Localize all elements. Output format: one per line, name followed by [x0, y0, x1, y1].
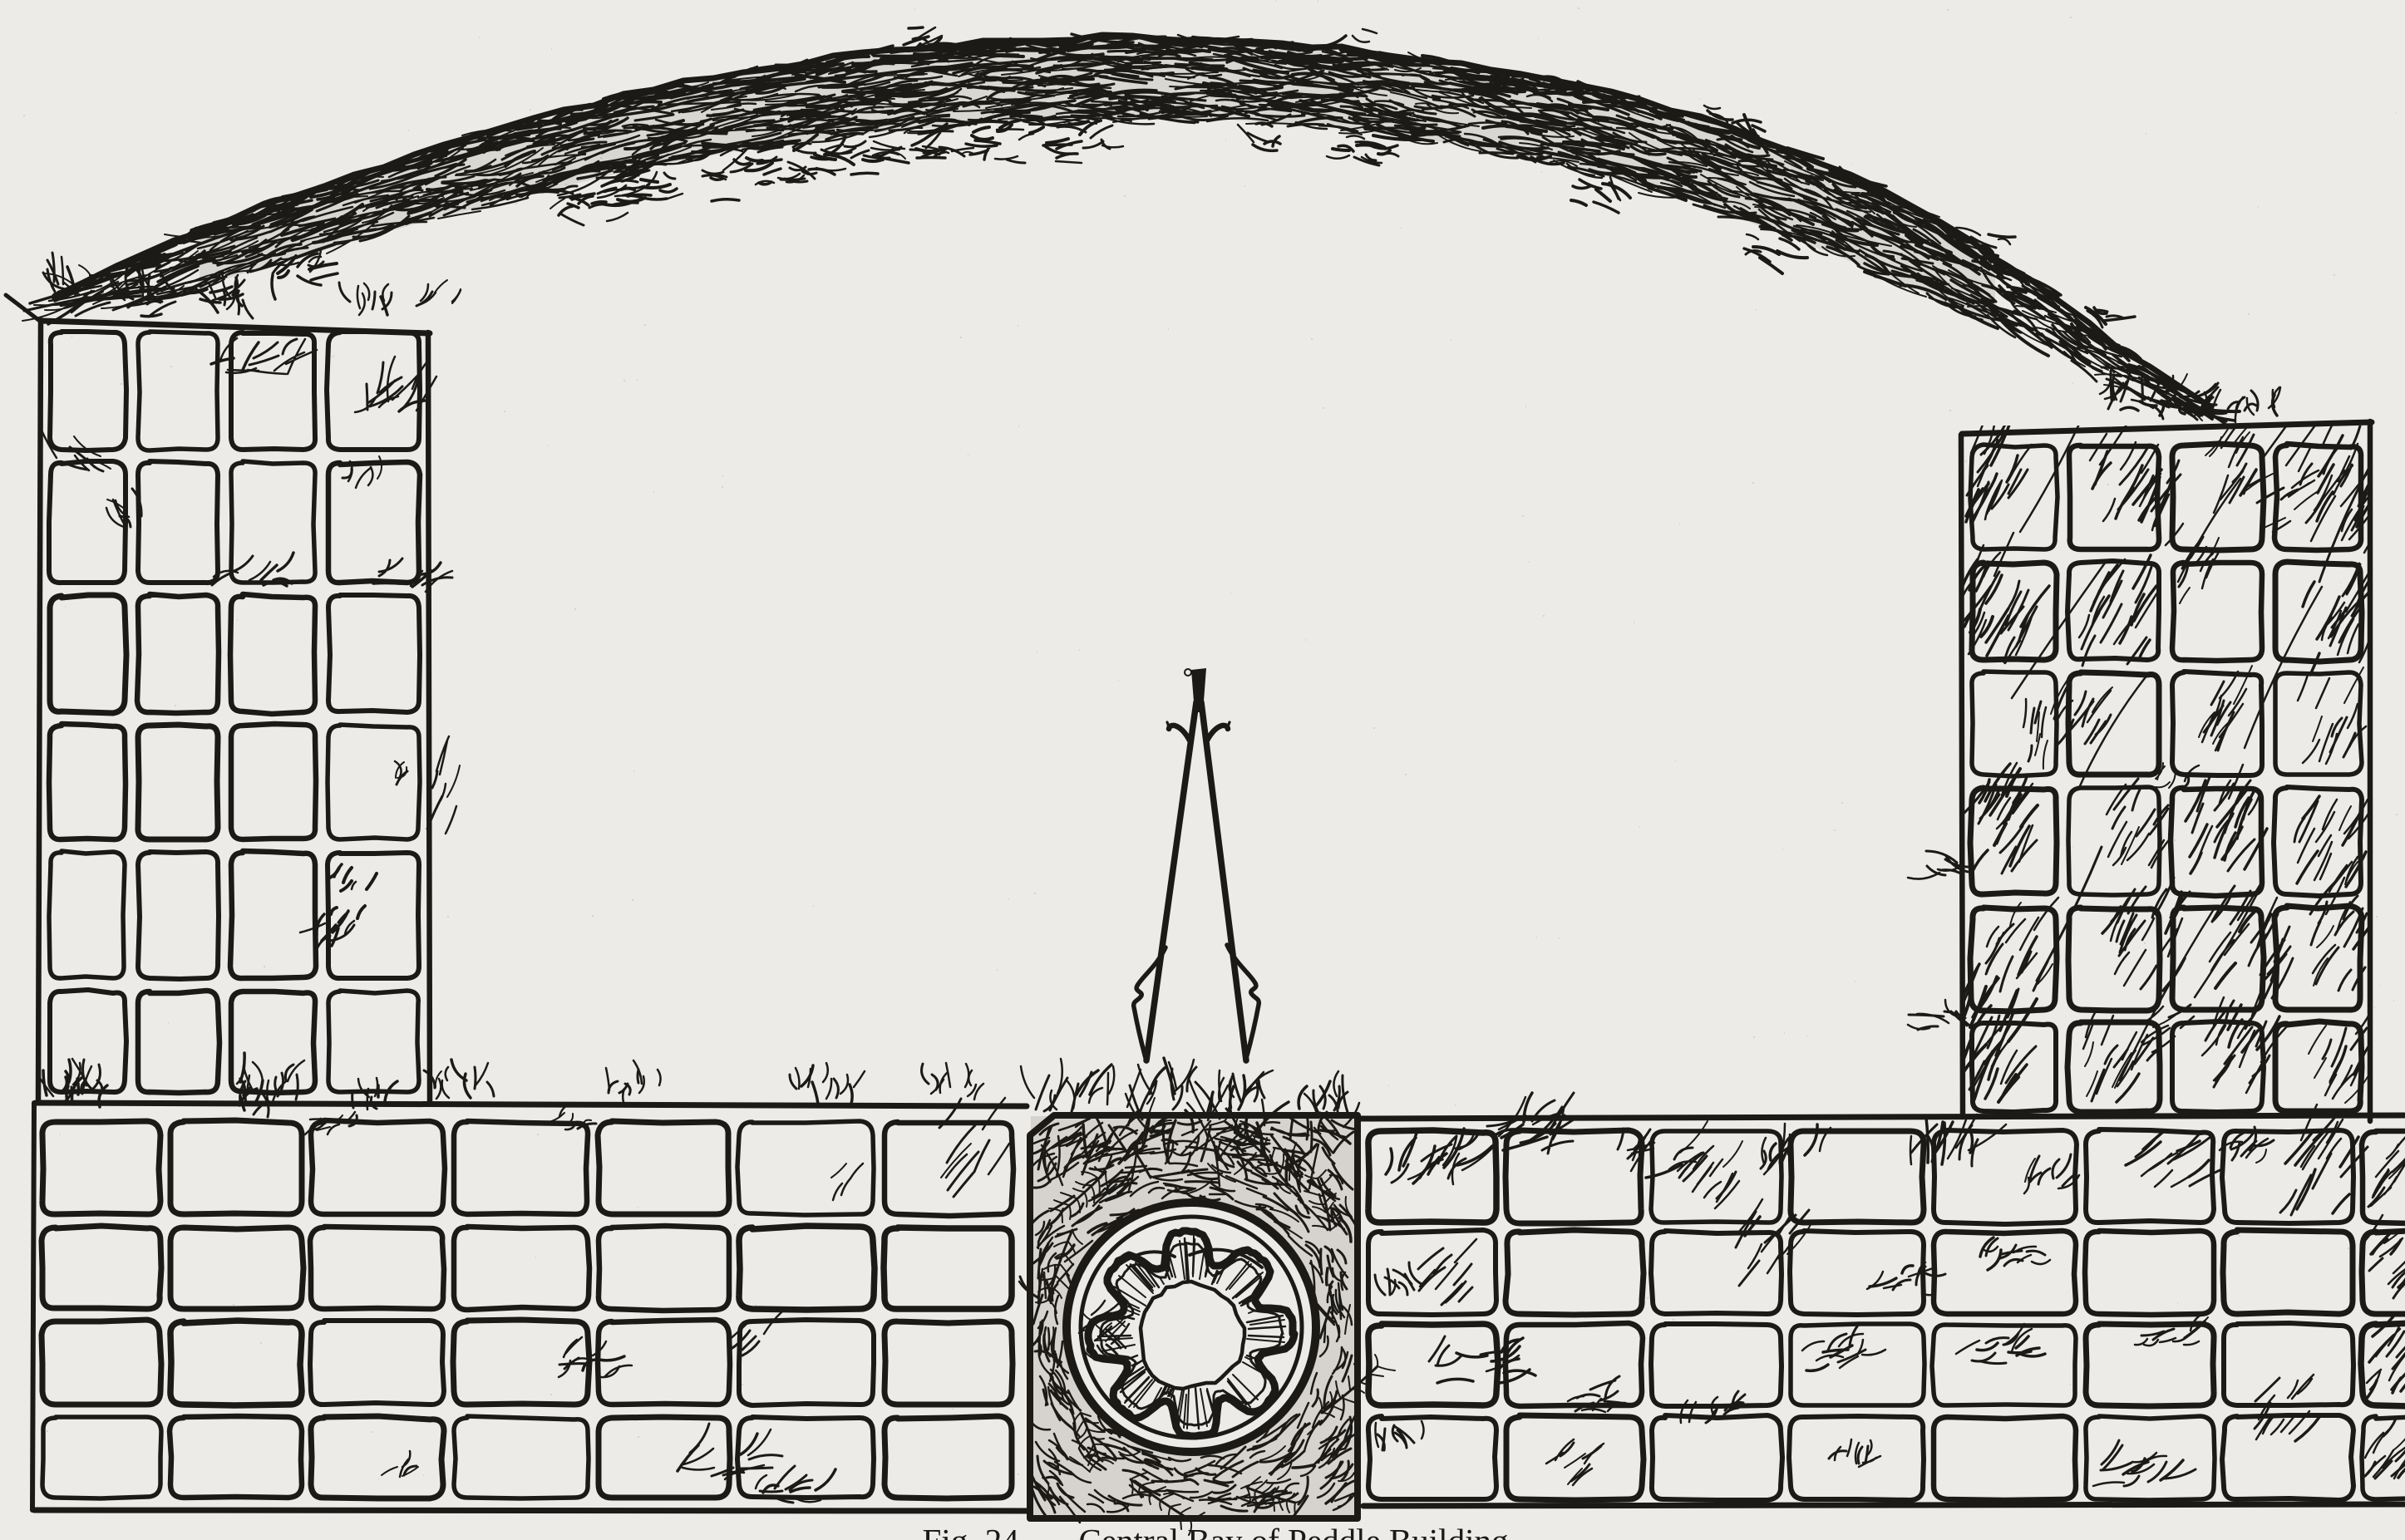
svg-text:Fig. 24. — Central Bay of Pedd: Fig. 24. — Central Bay of Peddle Buildin…	[923, 1522, 1509, 1540]
